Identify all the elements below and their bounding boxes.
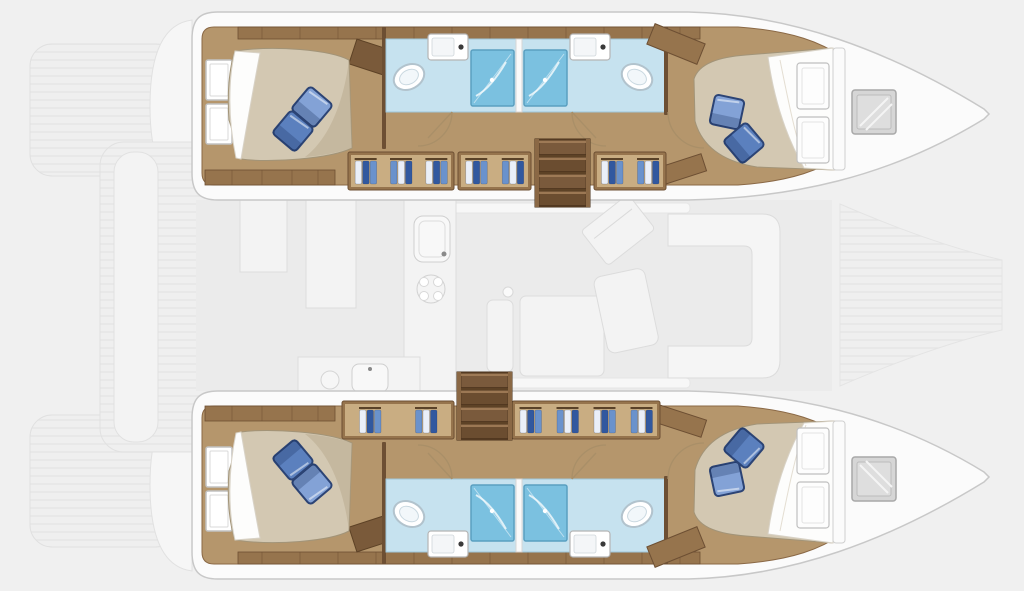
clothes-icon [572, 410, 579, 433]
galley-counter [240, 200, 287, 272]
hanger-rail [425, 158, 447, 160]
clothes-icon [602, 161, 609, 184]
clothes-icon [617, 161, 624, 184]
hanger-rail [601, 158, 623, 160]
stair-rail [535, 139, 539, 207]
hanger-rail [465, 158, 487, 160]
mast-post [503, 287, 513, 297]
clothes-icon [520, 410, 527, 433]
stair-tread-edge [461, 374, 508, 377]
clothes-icon [502, 161, 509, 184]
stair-rail [457, 372, 461, 440]
locker-row-port [348, 152, 666, 190]
stair-tread-edge [539, 192, 586, 195]
stair-tread-edge [461, 408, 508, 411]
bench-seat [487, 300, 513, 372]
clothes-icon [367, 410, 374, 433]
hanger-rail [502, 158, 524, 160]
clothes-icon [481, 161, 488, 184]
stair-rail [586, 139, 590, 207]
clothes-icon [639, 410, 646, 433]
cockpit-bench [114, 152, 158, 442]
clothes-icon [609, 161, 616, 184]
clothes-icon [510, 161, 517, 184]
stair-tread-edge [461, 391, 508, 394]
stair-tread-edge [539, 141, 586, 144]
companionway-stairs-port [535, 139, 590, 207]
clothes-icon [433, 161, 440, 184]
clothes-icon [473, 161, 480, 184]
clothes-icon [638, 161, 645, 184]
stair-tread-edge [461, 425, 508, 428]
clothes-icon [535, 410, 542, 433]
clothes-icon [602, 410, 609, 433]
companionway-stairs-starboard [457, 372, 512, 440]
galley-counter [306, 198, 356, 308]
clothes-icon [594, 410, 601, 433]
stair-rail [508, 372, 512, 440]
clothes-icon [406, 161, 413, 184]
clothes-icon [355, 161, 362, 184]
hanger-rail [390, 158, 412, 160]
clothes-icon [375, 410, 382, 433]
clothes-icon [646, 410, 653, 433]
round-fixture [321, 371, 339, 389]
hanger-rail [355, 158, 377, 160]
clothes-icon [370, 161, 377, 184]
stair-tread-edge [539, 175, 586, 178]
hanger-rail [415, 407, 437, 409]
clothes-icon [441, 161, 448, 184]
saloon-table [520, 296, 604, 376]
saloon [196, 194, 832, 393]
catamaran-floorplan [0, 0, 1024, 591]
clothes-icon [645, 161, 652, 184]
hanger-rail [594, 407, 616, 409]
hanger-rail [359, 407, 381, 409]
clothes-icon [631, 410, 638, 433]
galley-faucet [442, 252, 447, 257]
hanger-rail [520, 407, 542, 409]
clothes-icon [565, 410, 572, 433]
stair-tread-edge [539, 158, 586, 161]
hanger-rail [637, 158, 659, 160]
clothes-icon [363, 161, 370, 184]
clothes-icon [360, 410, 367, 433]
clothes-icon [398, 161, 405, 184]
clothes-icon [391, 161, 398, 184]
clothes-icon [653, 161, 660, 184]
clothes-icon [431, 410, 438, 433]
hanger-rail [631, 407, 653, 409]
aft-galley-faucet [368, 367, 372, 371]
clothes-icon [609, 410, 616, 433]
clothes-icon [426, 161, 433, 184]
clothes-icon [528, 410, 535, 433]
clothes-icon [423, 410, 430, 433]
stove [417, 275, 445, 303]
clothes-icon [517, 161, 524, 184]
hanger-rail [557, 407, 579, 409]
clothes-icon [557, 410, 564, 433]
clothes-icon [416, 410, 423, 433]
clothes-icon [466, 161, 473, 184]
